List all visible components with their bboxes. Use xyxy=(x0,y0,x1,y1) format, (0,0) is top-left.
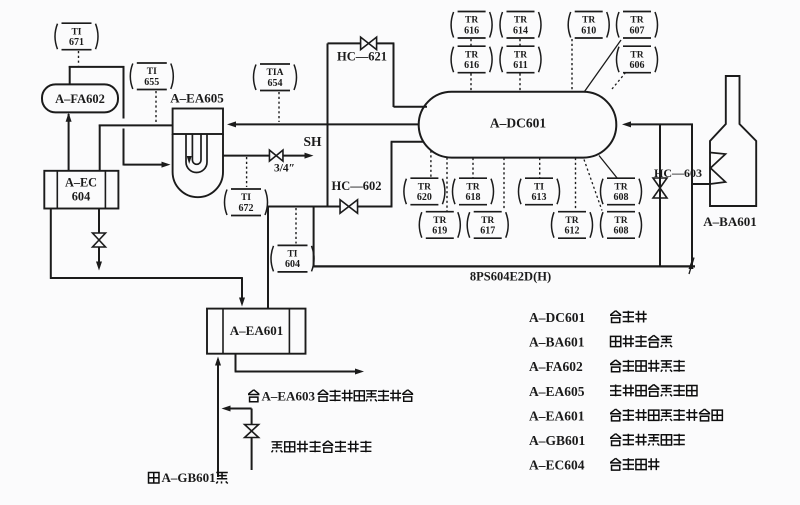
svg-text:604: 604 xyxy=(72,190,90,204)
svg-text:608: 608 xyxy=(614,226,629,237)
svg-text:616: 616 xyxy=(464,25,479,36)
svg-text:TR: TR xyxy=(614,216,627,226)
svg-text:620: 620 xyxy=(417,192,432,203)
svg-text:A–EA601: A–EA601 xyxy=(529,408,585,423)
svg-text:HC—621: HC—621 xyxy=(337,50,387,64)
svg-text:A–EA605: A–EA605 xyxy=(170,91,224,106)
svg-text:SH: SH xyxy=(303,134,322,149)
svg-text:604: 604 xyxy=(285,259,300,270)
svg-text:TR: TR xyxy=(582,16,595,26)
svg-text:A–GB601: A–GB601 xyxy=(529,433,586,448)
svg-text:TI: TI xyxy=(287,250,297,260)
svg-text:A–FA602: A–FA602 xyxy=(55,92,105,106)
svg-text:612: 612 xyxy=(565,226,580,237)
svg-text:613: 613 xyxy=(532,192,547,203)
svg-text:A–FA602: A–FA602 xyxy=(529,359,583,374)
svg-text:A–BA601: A–BA601 xyxy=(703,214,756,229)
svg-text:TI: TI xyxy=(534,182,544,192)
svg-text:A–EA603: A–EA603 xyxy=(262,388,316,403)
svg-text:TR: TR xyxy=(630,16,643,26)
svg-text:672: 672 xyxy=(239,203,254,214)
svg-text:A–EA605: A–EA605 xyxy=(529,384,585,399)
svg-text:655: 655 xyxy=(144,77,159,88)
svg-text:A–EC604: A–EC604 xyxy=(529,458,585,473)
svg-text:TR: TR xyxy=(465,50,478,60)
svg-text:671: 671 xyxy=(69,37,84,48)
svg-text:A–EC: A–EC xyxy=(65,176,97,190)
svg-text:8PS604E2D(H): 8PS604E2D(H) xyxy=(470,270,551,284)
svg-text:614: 614 xyxy=(513,25,528,36)
svg-text:TR: TR xyxy=(465,16,478,26)
svg-text:617: 617 xyxy=(480,226,495,237)
svg-text:607: 607 xyxy=(630,25,645,36)
svg-text:TR: TR xyxy=(630,50,643,60)
svg-text:TIA: TIA xyxy=(267,68,284,78)
svg-text:618: 618 xyxy=(466,192,481,203)
svg-text:A–BA601: A–BA601 xyxy=(529,335,585,350)
svg-text:TI: TI xyxy=(241,193,251,203)
svg-text:TI: TI xyxy=(147,67,157,77)
svg-text:TR: TR xyxy=(466,182,479,192)
svg-text:616: 616 xyxy=(464,60,479,71)
svg-text:TR: TR xyxy=(481,216,494,226)
svg-text:A–DC601: A–DC601 xyxy=(490,115,546,130)
svg-text:TR: TR xyxy=(614,182,627,192)
svg-text:610: 610 xyxy=(581,25,596,36)
svg-text:TR: TR xyxy=(514,16,527,26)
svg-text:TR: TR xyxy=(514,50,527,60)
svg-text:HC—602: HC—602 xyxy=(332,179,382,193)
svg-text:608: 608 xyxy=(614,192,629,203)
svg-text:A–DC601: A–DC601 xyxy=(529,310,585,325)
svg-text:HC—603: HC—603 xyxy=(654,166,702,180)
svg-text:A–GB601: A–GB601 xyxy=(162,470,216,485)
svg-text:TI: TI xyxy=(71,27,81,37)
svg-text:611: 611 xyxy=(513,60,527,71)
svg-text:3/4″: 3/4″ xyxy=(274,163,295,175)
svg-text:A–EA601: A–EA601 xyxy=(230,323,283,338)
svg-text:606: 606 xyxy=(630,60,645,71)
svg-text:TR: TR xyxy=(418,182,431,192)
svg-text:654: 654 xyxy=(268,78,283,89)
svg-text:619: 619 xyxy=(432,226,447,237)
svg-text:TR: TR xyxy=(433,216,446,226)
svg-text:TR: TR xyxy=(565,216,578,226)
